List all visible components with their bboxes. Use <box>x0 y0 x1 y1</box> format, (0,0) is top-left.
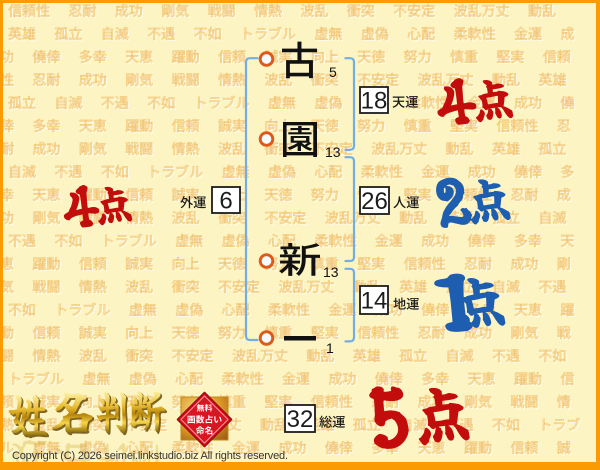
svg-text:18: 18 <box>361 88 388 115</box>
svg-text:32: 32 <box>287 406 314 433</box>
svg-text:5: 5 <box>329 64 337 80</box>
svg-text:13: 13 <box>325 144 341 160</box>
svg-text:6: 6 <box>219 188 232 215</box>
svg-text:26: 26 <box>361 188 388 215</box>
svg-text:1: 1 <box>326 340 334 356</box>
svg-text:14: 14 <box>361 288 388 315</box>
svg-text:Copyright (C) 2026 seimei.link: Copyright (C) 2026 seimei.linkstudio.biz… <box>12 450 288 462</box>
svg-text:13: 13 <box>323 264 339 280</box>
